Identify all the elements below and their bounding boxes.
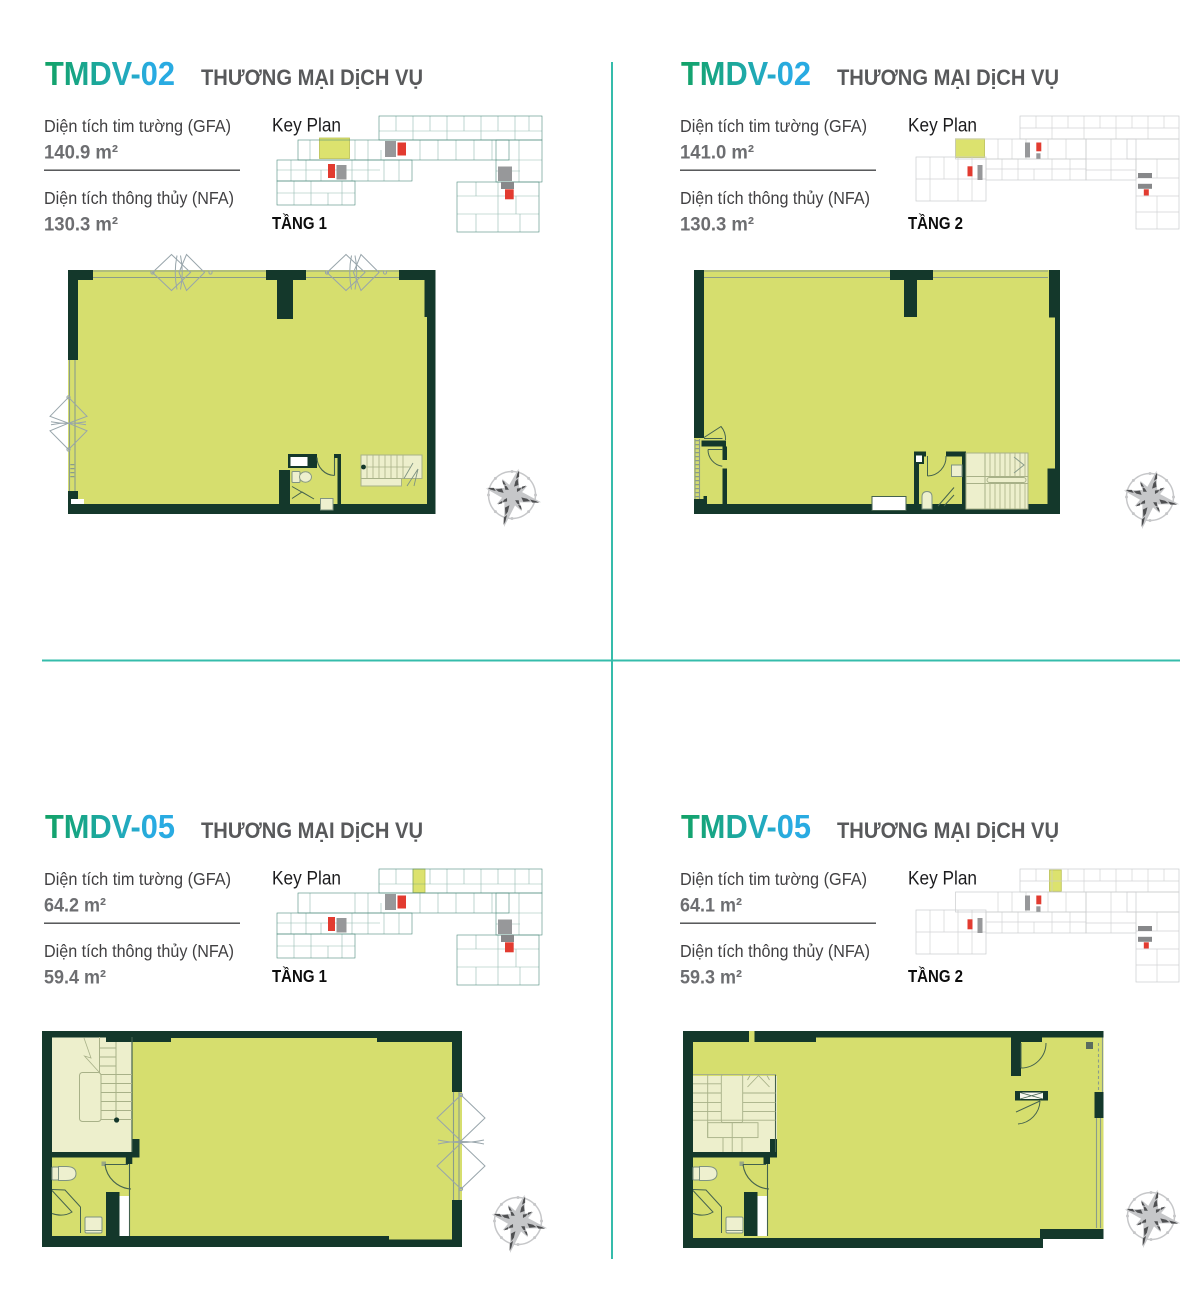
svg-text:141.0 m²: 141.0 m² (680, 143, 754, 164)
svg-text:THƯƠNG MẠI DịCH VỤ: THƯƠNG MẠI DịCH VỤ (201, 65, 423, 90)
svg-text:Diện tích tim tường (GFA): Diện tích tim tường (GFA) (680, 869, 867, 889)
svg-text:Diện tích thông thủy (NFA): Diện tích thông thủy (NFA) (680, 188, 870, 208)
svg-text:140.9 m²: 140.9 m² (44, 143, 118, 164)
svg-text:130.3 m²: 130.3 m² (680, 215, 754, 236)
svg-text:59.4 m²: 59.4 m² (44, 968, 106, 989)
svg-text:Diện tích tim tường (GFA): Diện tích tim tường (GFA) (44, 869, 231, 889)
svg-text:Diện tích thông thủy (NFA): Diện tích thông thủy (NFA) (44, 941, 234, 961)
svg-text:TMDV-05: TMDV-05 (681, 808, 811, 845)
svg-text:THƯƠNG MẠI DịCH VỤ: THƯƠNG MẠI DịCH VỤ (201, 818, 423, 843)
svg-text:Key Plan: Key Plan (908, 116, 977, 137)
svg-text:Key Plan: Key Plan (908, 869, 977, 890)
svg-text:THƯƠNG MẠI DịCH VỤ: THƯƠNG MẠI DịCH VỤ (837, 818, 1059, 843)
svg-text:130.3 m²: 130.3 m² (44, 215, 118, 236)
svg-text:Diện tích tim tường (GFA): Diện tích tim tường (GFA) (680, 116, 867, 136)
svg-text:Key Plan: Key Plan (272, 116, 341, 137)
svg-text:59.3 m²: 59.3 m² (680, 968, 742, 989)
svg-text:TMDV-05: TMDV-05 (45, 808, 175, 845)
svg-text:TMDV-02: TMDV-02 (45, 55, 175, 92)
svg-text:Diện tích thông thủy (NFA): Diện tích thông thủy (NFA) (44, 188, 234, 208)
svg-text:64.2 m²: 64.2 m² (44, 896, 106, 917)
svg-text:64.1 m²: 64.1 m² (680, 896, 742, 917)
svg-text:THƯƠNG MẠI DịCH VỤ: THƯƠNG MẠI DịCH VỤ (837, 65, 1059, 90)
svg-text:TẦNG 2: TẦNG 2 (908, 212, 963, 233)
svg-text:Key Plan: Key Plan (272, 869, 341, 890)
svg-text:Diện tích tim tường (GFA): Diện tích tim tường (GFA) (44, 116, 231, 136)
svg-text:TMDV-02: TMDV-02 (681, 55, 811, 92)
svg-text:Diện tích thông thủy (NFA): Diện tích thông thủy (NFA) (680, 941, 870, 961)
svg-text:TẦNG 2: TẦNG 2 (908, 965, 963, 986)
svg-text:TẦNG 1: TẦNG 1 (272, 212, 327, 233)
svg-text:TẦNG 1: TẦNG 1 (272, 965, 327, 986)
